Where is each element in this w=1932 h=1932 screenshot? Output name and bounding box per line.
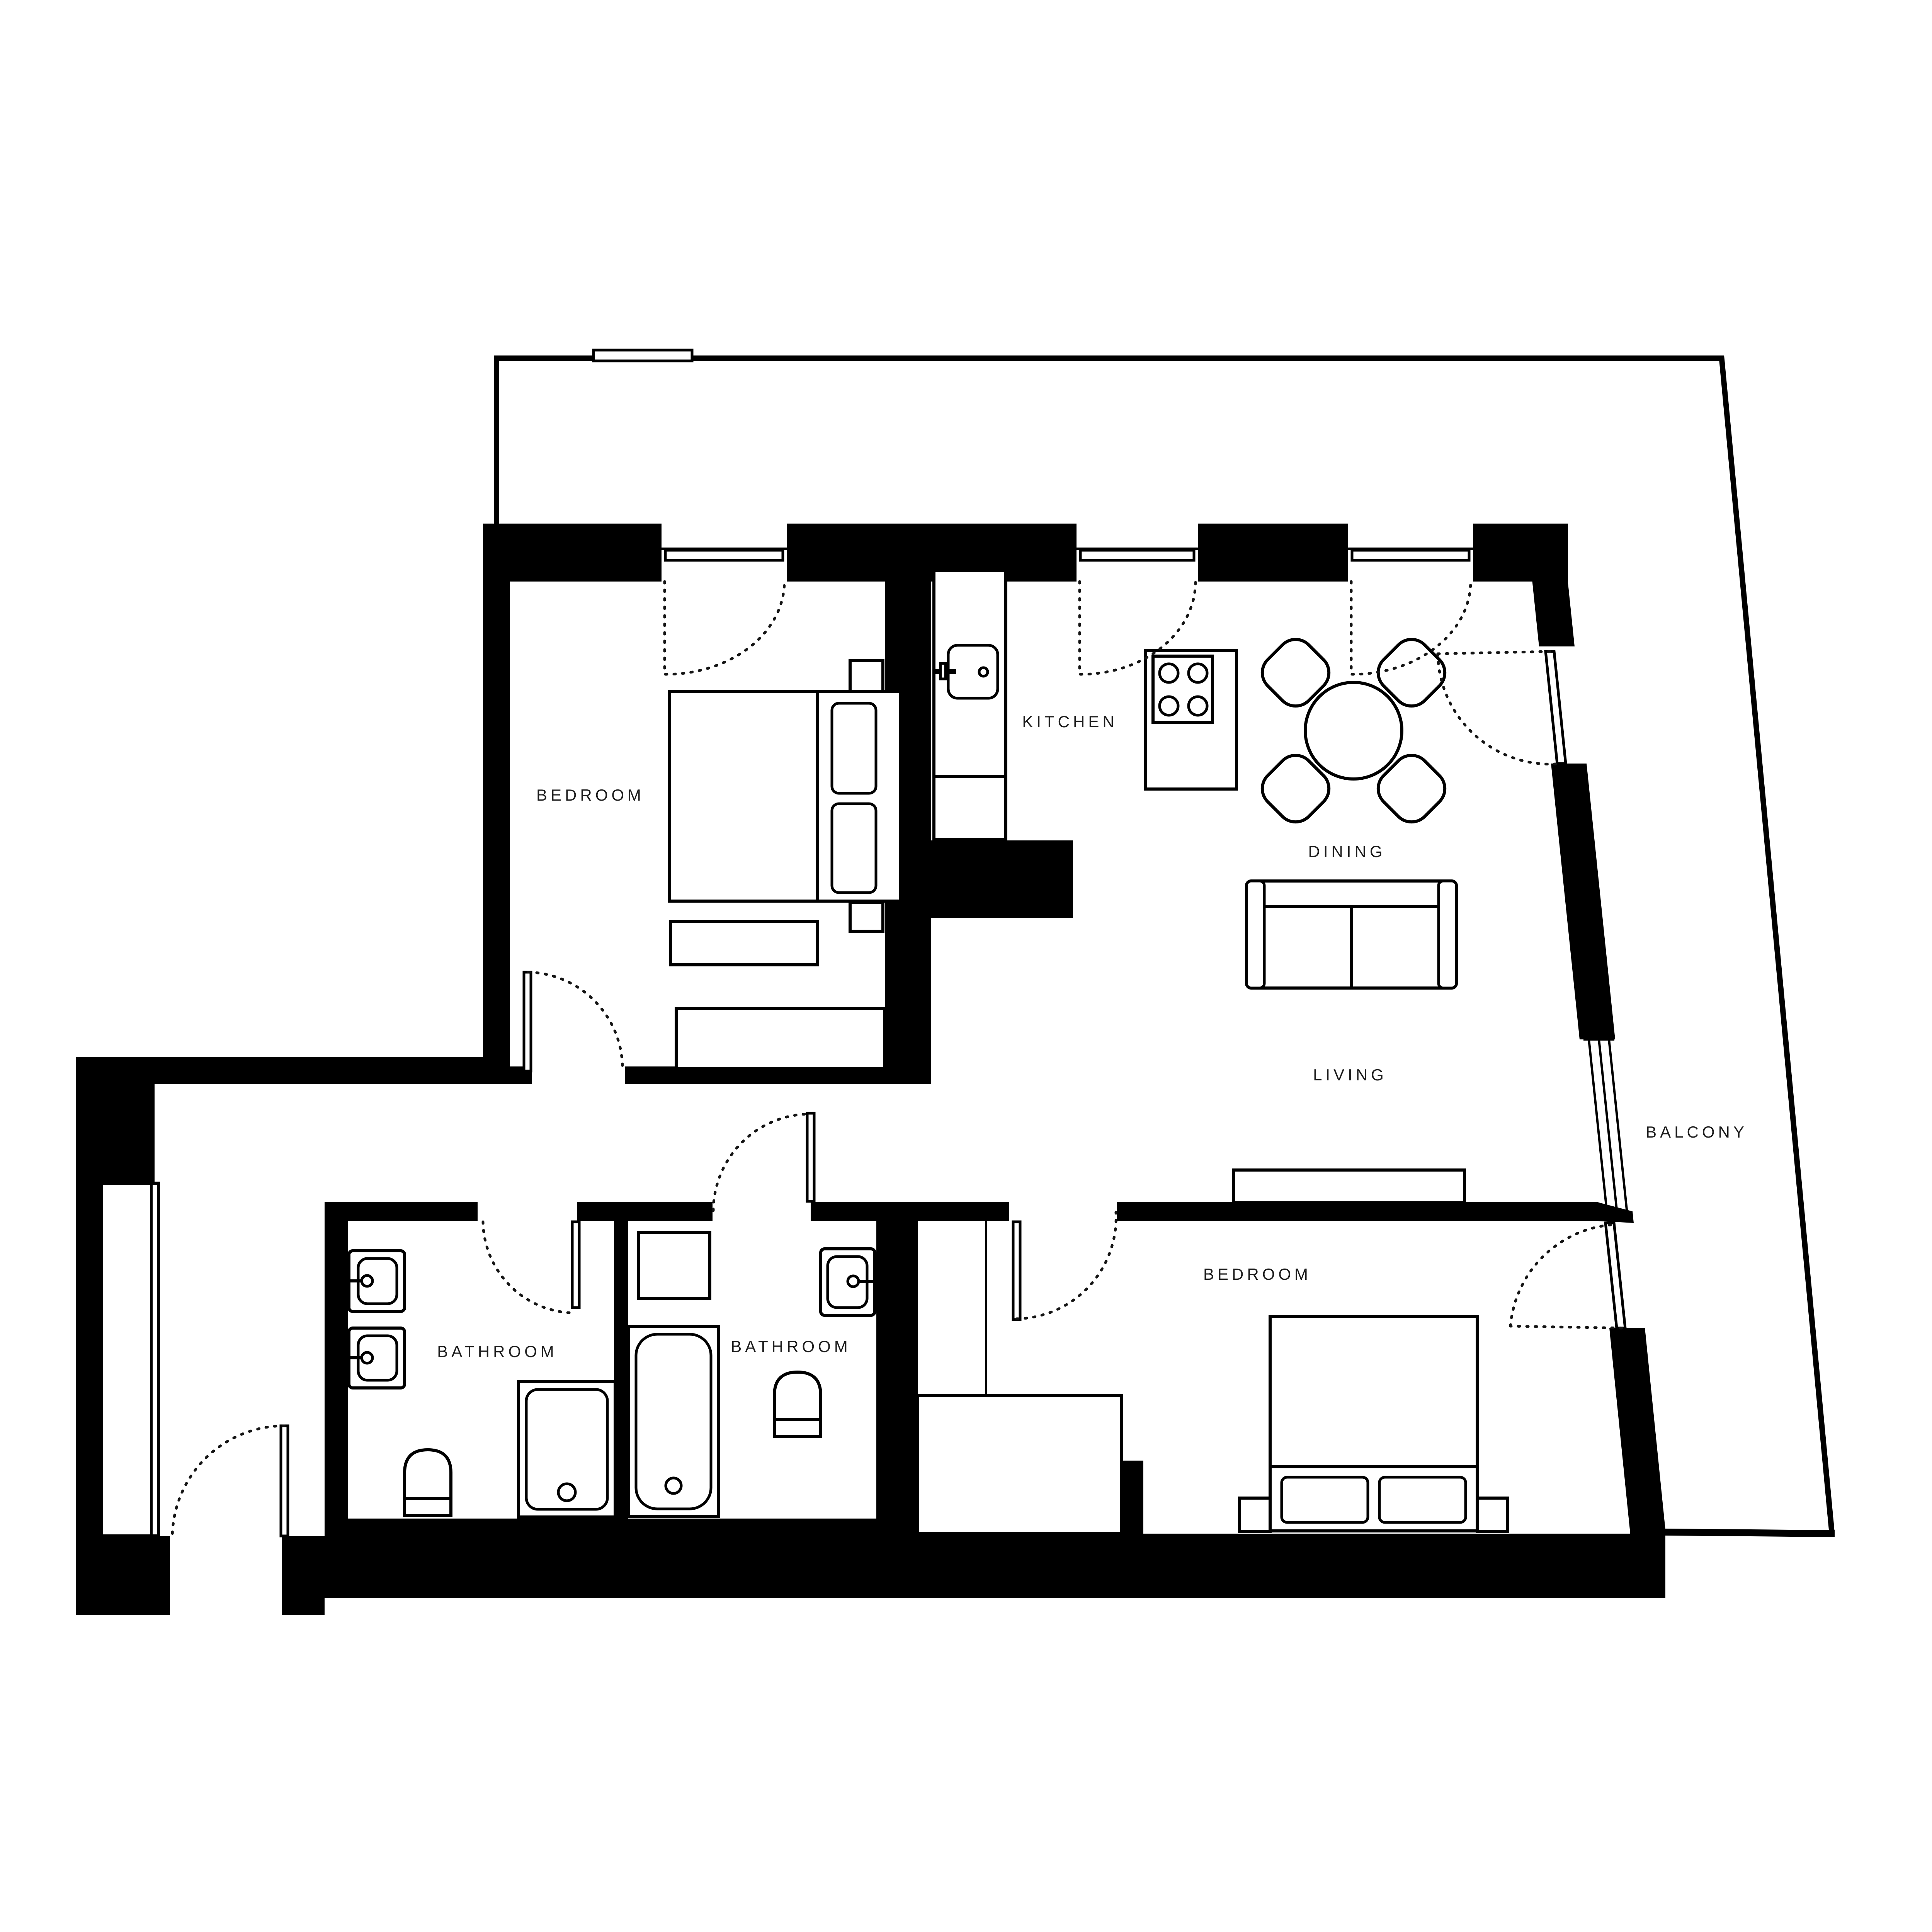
burner-icon [1189,664,1207,682]
door-leaf [1352,550,1469,560]
room-label-kitchen: KITCHEN [1022,713,1117,731]
dining-table-icon [1305,682,1402,779]
window-icon [1589,1039,1607,1213]
pillow-icon [832,804,876,893]
room-label-living: LIVING [1313,1066,1387,1084]
pillow-icon [832,703,876,793]
toilet-icon [774,1372,821,1436]
door-swing-icon [713,1114,811,1211]
door-leaf [1080,550,1194,560]
door-swing-icon [1017,1212,1116,1319]
door-swing-icon [1510,1326,1622,1328]
pillow-icon [1379,1477,1466,1522]
room-label-dining: DINING [1308,842,1386,861]
door-leaf [1605,1223,1625,1328]
door-leaf [665,550,783,560]
floor-plan-drawing: BEDROOM KITCHEN DINING LIVING BALCONY BA… [0,0,1932,1932]
entrance-door-leaf [281,1426,288,1536]
living-furniture [1233,881,1464,1203]
room-labels: BEDROOM KITCHEN DINING LIVING BALCONY BA… [437,713,1748,1361]
pillow-icon [1282,1477,1368,1522]
door-swing-icon [172,1426,284,1536]
wardrobe-icon [101,1183,158,1536]
room-label-balcony: BALCONY [1646,1123,1748,1141]
nightstand-icon [1240,1498,1270,1532]
door-swing-icon [665,582,784,674]
door-swing-icon [483,1222,576,1313]
door-leaf [572,1222,579,1308]
tv-console-icon [1233,1170,1464,1203]
washer-icon [638,1233,710,1298]
faucet-icon [848,1276,859,1287]
faucet-icon [362,1352,372,1363]
dining-furniture [1255,632,1452,830]
nightstand-icon [850,903,883,931]
bedroom-2-furniture [1240,1316,1508,1532]
drain-icon [558,1484,575,1501]
wardrobe-icon [918,1395,1122,1534]
kitchen-fixtures [934,571,1236,839]
door-swing-icon [1438,651,1550,654]
nightstand-icon [850,661,883,692]
toilet-icon [405,1450,451,1515]
room-label-bedroom-2: BEDROOM [1203,1265,1311,1283]
bench-icon [676,1009,885,1068]
room-label-bathroom-1: BATHROOM [437,1342,558,1361]
door-leaf [1013,1222,1020,1320]
nightstand-icon [1477,1498,1508,1532]
burner-icon [1160,697,1178,715]
faucet-icon [362,1276,372,1286]
kitchen-counter-icon [934,571,1006,839]
bench-icon [670,922,817,965]
bathroom-2-fixtures [628,1233,876,1517]
bedroom-1-furniture [669,661,900,1068]
room-label-bedroom-1: BEDROOM [536,786,645,804]
floor-plan-page: BEDROOM KITCHEN DINING LIVING BALCONY BA… [0,0,1932,1932]
drain-icon [666,1478,681,1493]
door-leaf [524,972,531,1071]
door-swing-icon [528,972,622,1067]
door-leaf [1546,651,1566,764]
burner-icon [1160,664,1178,682]
door-leaf [807,1113,814,1201]
room-label-bathroom-2: BATHROOM [731,1337,851,1355]
terrace-gate [594,350,692,361]
burner-icon [1189,697,1207,715]
